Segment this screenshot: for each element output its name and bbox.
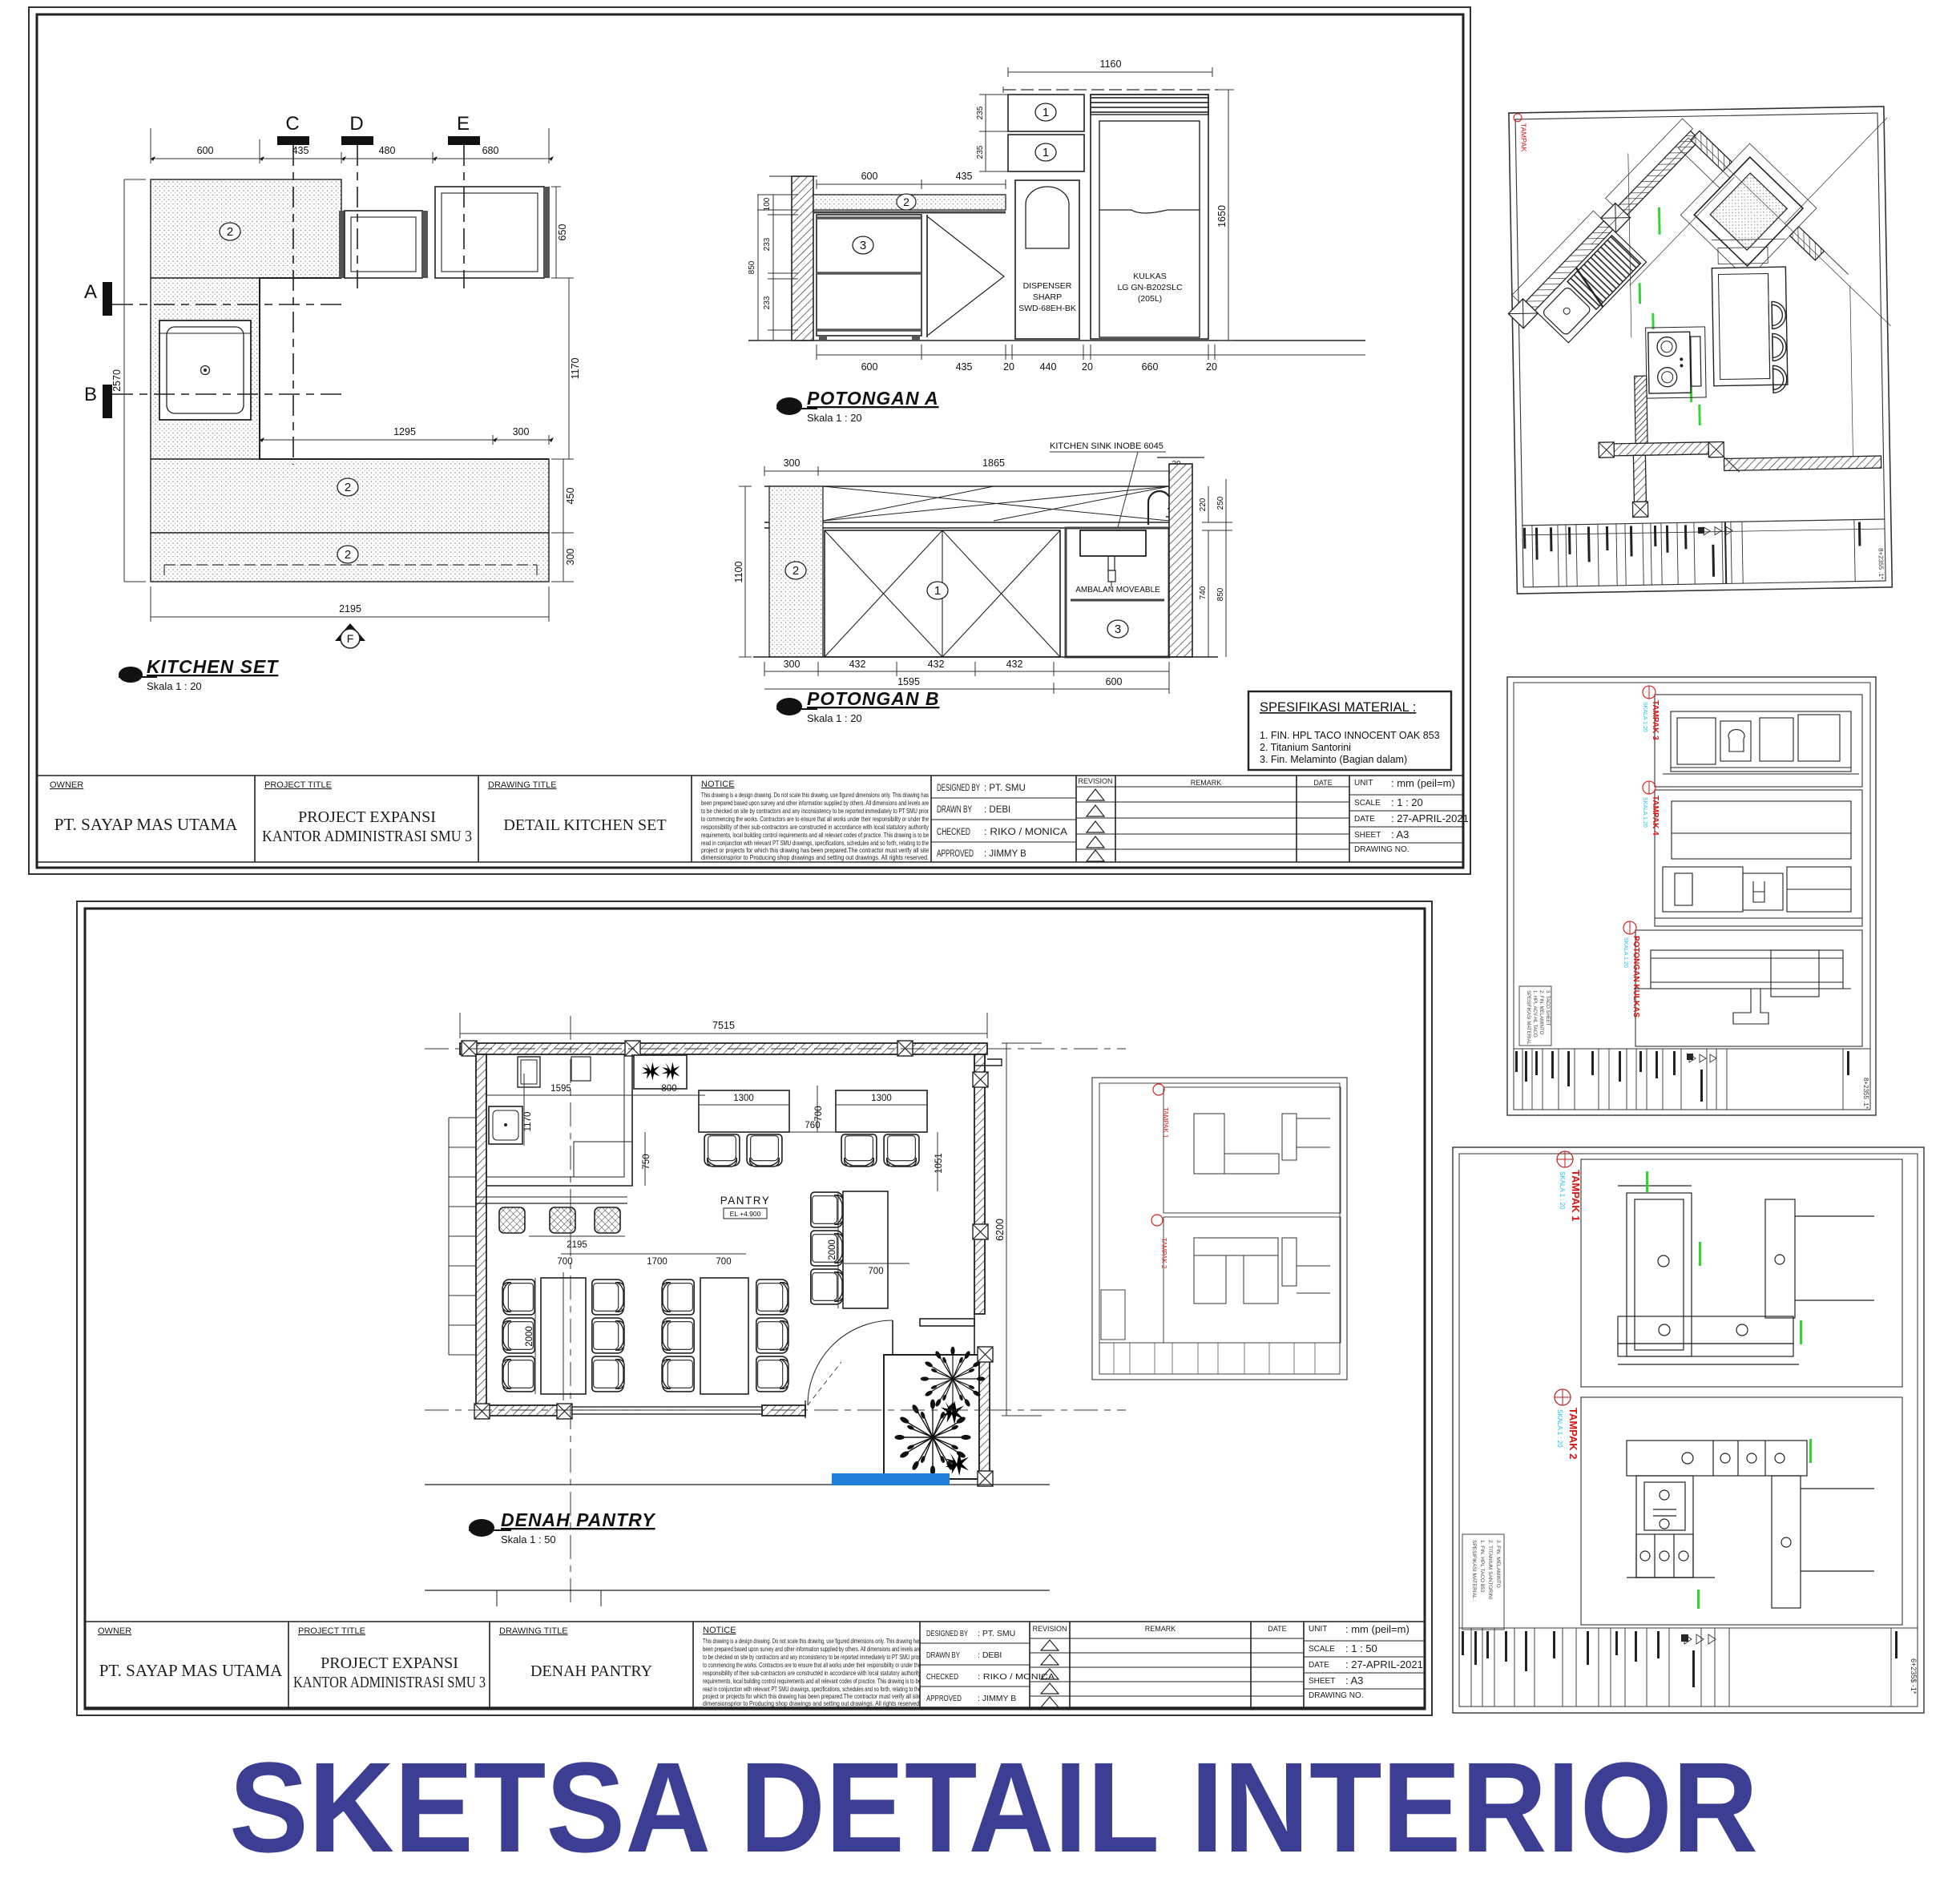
svg-text:F: F [347,632,354,645]
svg-text:300: 300 [784,457,801,469]
svg-text:read in conjunction with relev: read in conjunction with relevant PT SMU… [703,1686,921,1693]
svg-text:DESIGNED BY: DESIGNED BY [926,1629,968,1638]
svg-text:1650: 1650 [1216,205,1228,228]
svg-text:TAMPAK: TAMPAK [1519,123,1528,152]
svg-text:APPROVED: APPROVED [937,849,974,859]
svg-text:SCALE: SCALE [1309,1645,1335,1654]
svg-text:project or projects for which: project or projects for which this drawi… [703,1693,921,1700]
svg-text:TAMPAK 4: TAMPAK 4 [1651,796,1660,836]
svg-text:SKETSA DETAIL INTERIOR: SKETSA DETAIL INTERIOR [229,1735,1758,1879]
svg-text:TAMPAK 1: TAMPAK 1 [1162,1107,1169,1138]
svg-text:requirements, local building c: requirements, local building control req… [701,832,929,839]
svg-text:1. FIN. HPL TACO 853: 1. FIN. HPL TACO 853 [1479,1540,1485,1593]
svg-text:SPESIFIKASI MATERIAL: SPESIFIKASI MATERIAL [1526,990,1530,1046]
svg-text:435: 435 [956,171,973,182]
svg-text:DRAWING TITLE: DRAWING TITLE [499,1626,568,1636]
svg-text:responsibility of their sub-co: responsibility of their sub-contractors … [703,1670,922,1677]
svg-text:8+2355 .1*: 8+2355 .1* [1877,548,1885,579]
svg-text:SHEET: SHEET [1309,1677,1335,1686]
svg-text:432: 432 [1006,659,1023,670]
svg-text:: 27-APRIL-2021: : 27-APRIL-2021 [1391,812,1469,824]
svg-text:1100: 1100 [733,562,744,583]
svg-text:250: 250 [1216,496,1225,510]
svg-text:EL +4.900: EL +4.900 [730,1210,761,1218]
svg-text:PROJECT TITLE: PROJECT TITLE [298,1626,365,1636]
svg-text:1865: 1865 [982,457,1005,469]
svg-text:650: 650 [557,224,568,241]
svg-text:OWNER: OWNER [50,780,83,790]
svg-text:TAMPAK 1: TAMPAK 1 [1570,1170,1582,1222]
svg-text:dimensionsprior to Producing s: dimensionsprior to Producing shop drawin… [703,1700,921,1707]
svg-text:3. Fin. Melaminto (Bagian dala: 3. Fin. Melaminto (Bagian dalam) [1260,754,1407,765]
svg-text:DRAWING NO.: DRAWING NO. [1309,1691,1364,1700]
svg-text:600: 600 [1106,676,1123,687]
svg-text:B: B [84,384,97,405]
svg-text:A: A [84,281,97,303]
svg-text:dimensionsprior to Producing s: dimensionsprior to Producing shop drawin… [701,854,929,861]
svg-text:KULKAS: KULKAS [1133,272,1166,281]
svg-text:750: 750 [642,1154,651,1169]
svg-text:POTONGAN A: POTONGAN A [807,388,939,409]
svg-text:DRAWING TITLE: DRAWING TITLE [488,780,557,790]
svg-text:DETAIL KITCHEN SET: DETAIL KITCHEN SET [503,816,666,834]
svg-text:2: 2 [345,548,351,562]
svg-text:1051: 1051 [934,1153,944,1174]
svg-text:Skala 1 : 20: Skala 1 : 20 [147,680,202,692]
svg-text:: A3: : A3 [1391,828,1409,840]
svg-text:KANTOR ADMINISTRASI SMU 3: KANTOR ADMINISTRASI SMU 3 [262,828,472,845]
svg-text:POTONGAN KULKAS: POTONGAN KULKAS [1631,936,1640,1017]
svg-text:1300: 1300 [733,1094,754,1103]
svg-text:to commencing the works. Contr: to commencing the works. Contractors are… [701,816,929,823]
svg-text:233: 233 [763,237,772,251]
svg-text:2: 2 [227,225,233,239]
svg-text:2. Titanium Santorini: 2. Titanium Santorini [1260,742,1351,753]
svg-text:APPROVED: APPROVED [926,1694,962,1703]
svg-text:20: 20 [1003,361,1014,373]
svg-text:PROJECT EXPANSI: PROJECT EXPANSI [298,808,436,826]
svg-text:: 1 : 50: : 1 : 50 [1345,1642,1377,1654]
svg-text:435: 435 [956,361,973,373]
svg-text:850: 850 [748,260,756,274]
svg-text:SHEET: SHEET [1354,831,1381,840]
svg-text:REMARK: REMARK [1145,1625,1176,1633]
svg-text:TAMPAK 3: TAMPAK 3 [1651,700,1660,740]
svg-text:1595: 1595 [550,1084,571,1094]
svg-text:NOTICE: NOTICE [703,1626,736,1635]
svg-text:POTONGAN B: POTONGAN B [807,688,939,709]
svg-text:: PT. SMU: : PT. SMU [984,784,1026,793]
svg-text:1. HPL ACV-HL TACO: 1. HPL ACV-HL TACO [1532,990,1537,1038]
svg-text:1160: 1160 [1100,58,1122,70]
svg-text:100: 100 [763,197,772,211]
svg-text:1595: 1595 [897,676,920,687]
svg-text:450: 450 [565,488,576,505]
svg-text:KANTOR ADMINISTRASI SMU 3: KANTOR ADMINISTRASI SMU 3 [293,1674,486,1691]
svg-text:: JIMMY B: : JIMMY B [984,849,1026,859]
svg-text:435: 435 [292,145,309,156]
svg-text:1295: 1295 [393,426,416,437]
svg-text:3. FIN. MELAMINTO: 3. FIN. MELAMINTO [1495,1540,1501,1588]
svg-text:: A3: : A3 [1345,1674,1363,1686]
svg-text:2195: 2195 [567,1240,587,1250]
svg-text:1300: 1300 [871,1094,892,1103]
svg-text:600: 600 [197,145,214,156]
svg-text:SKALA 1:20: SKALA 1:20 [1623,937,1628,968]
svg-text:KITCHEN SET: KITCHEN SET [147,656,279,677]
svg-text:1: 1 [1043,106,1049,119]
svg-text:PROJECT TITLE: PROJECT TITLE [264,780,332,790]
svg-text:project or projects for which: project or projects for which this drawi… [701,847,929,854]
svg-text:to be checked on site by contr: to be checked on site by contractors and… [701,808,929,815]
svg-text:SKALA 1 : 20: SKALA 1 : 20 [1559,1171,1566,1210]
svg-text:233: 233 [763,296,772,309]
svg-text:TAMPAK 2: TAMPAK 2 [1160,1238,1168,1269]
svg-text:OWNER: OWNER [98,1626,131,1636]
svg-text:700: 700 [868,1267,883,1276]
svg-text:SKALA 1:20: SKALA 1:20 [1642,702,1647,732]
svg-text:UNIT: UNIT [1354,779,1373,788]
svg-text:2. FIN. MELAMINTO: 2. FIN. MELAMINTO [1539,990,1543,1035]
svg-text:3. TACO SHEET: 3. TACO SHEET [1545,990,1550,1026]
svg-text:235: 235 [976,145,985,159]
svg-text:C: C [285,113,299,135]
svg-text:2000: 2000 [525,1326,534,1347]
svg-text:220: 220 [1199,498,1208,511]
svg-text:SKALA 1 : 20: SKALA 1 : 20 [1556,1409,1563,1448]
svg-text:3: 3 [1115,623,1121,636]
svg-text:CHECKED: CHECKED [937,828,970,837]
svg-text:REVISION: REVISION [1032,1625,1067,1633]
svg-text:SPESIFIKASI MATERIAL :: SPESIFIKASI MATERIAL : [1471,1540,1477,1602]
svg-text:to commencing the works. Contr: to commencing the works. Contractors are… [703,1662,921,1669]
svg-text:1. FIN. HPL TACO INNOCENT OAK: 1. FIN. HPL TACO INNOCENT OAK 853 [1260,730,1440,741]
svg-text:DESIGNED BY: DESIGNED BY [937,784,980,793]
svg-text:300: 300 [513,426,530,437]
svg-text:: JIMMY B: : JIMMY B [978,1694,1016,1703]
svg-text:1170: 1170 [523,1112,533,1132]
svg-text:235: 235 [976,106,985,119]
svg-text:been prepared based upon surve: been prepared based upon survey and othe… [701,800,929,807]
svg-text:DATE: DATE [1313,779,1332,787]
svg-text:to be checked on site by contr: to be checked on site by contractors and… [703,1654,921,1661]
svg-text:DRAWN BY: DRAWN BY [926,1650,960,1660]
svg-text:(205L): (205L) [1138,294,1162,304]
svg-text:2: 2 [903,195,909,208]
svg-text:6200: 6200 [994,1219,1006,1241]
svg-text:SCALE: SCALE [1354,799,1381,808]
svg-text:1: 1 [934,584,941,598]
svg-text:CHECKED: CHECKED [926,1672,958,1682]
svg-text:700: 700 [716,1257,731,1267]
svg-text:AMBALAN MOVEABLE: AMBALAN MOVEABLE [1075,586,1160,594]
svg-text:: RIKO / MONICA: : RIKO / MONICA [984,828,1067,837]
svg-text:DRAWN BY: DRAWN BY [937,805,972,815]
svg-text:2570: 2570 [111,369,123,392]
svg-text:7515: 7515 [712,1020,735,1031]
svg-text:432: 432 [928,659,945,670]
svg-text:PROJECT EXPANSI: PROJECT EXPANSI [321,1654,458,1672]
svg-text:SWD-68EH-BK: SWD-68EH-BK [1018,304,1076,313]
svg-text:: PT. SMU: : PT. SMU [978,1629,1015,1638]
svg-text:480: 480 [379,145,396,156]
svg-text:1700: 1700 [647,1257,667,1267]
svg-text:850: 850 [1216,587,1225,601]
svg-text:660: 660 [1142,361,1159,373]
svg-text:: mm (peil=m): : mm (peil=m) [1391,777,1455,789]
svg-text:800: 800 [661,1084,676,1094]
svg-text:Skala 1 : 20: Skala 1 : 20 [807,712,862,724]
svg-text:2000: 2000 [828,1239,837,1260]
svg-text:DATE: DATE [1354,815,1375,824]
svg-text:UNIT: UNIT [1309,1625,1327,1634]
svg-text:PANTRY: PANTRY [720,1195,771,1207]
svg-text:20: 20 [1206,361,1217,373]
svg-text:740: 740 [1199,586,1208,599]
svg-text:1170: 1170 [570,358,581,380]
svg-text:760: 760 [805,1121,820,1130]
svg-text:: mm (peil=m): : mm (peil=m) [1345,1623,1410,1635]
svg-text:been prepared based upon surve: been prepared based upon survey and othe… [703,1646,921,1653]
svg-text:REMARK: REMARK [1191,779,1222,787]
svg-text:D: D [349,113,363,135]
svg-text:20: 20 [1082,361,1093,373]
svg-text:This drawing is a design drawi: This drawing is a design drawing. Do not… [703,1638,921,1645]
svg-text:3: 3 [860,239,866,252]
svg-text:DENAH PANTRY: DENAH PANTRY [501,1509,656,1530]
svg-text:DATE: DATE [1309,1661,1329,1670]
svg-text:REVISION: REVISION [1078,777,1112,785]
svg-text:600: 600 [861,171,878,182]
svg-text:: DEBI: : DEBI [978,1650,1002,1660]
svg-text:6+235$ -1*: 6+235$ -1* [1910,1658,1918,1694]
svg-text:DENAH PANTRY: DENAH PANTRY [530,1662,652,1680]
svg-text:8+2355 .1*: 8+2355 .1* [1862,1078,1869,1109]
svg-text:E: E [457,113,470,135]
svg-text:LG GN-B202SLC: LG GN-B202SLC [1117,283,1183,292]
svg-text:NOTICE: NOTICE [701,780,735,789]
svg-text:300: 300 [784,659,801,670]
svg-text:1: 1 [1043,146,1049,159]
svg-text:2195: 2195 [339,603,361,615]
svg-text:SHARP: SHARP [1033,292,1062,302]
svg-text:680: 680 [482,145,499,156]
svg-text:432: 432 [849,659,866,670]
svg-text:700: 700 [814,1106,824,1121]
svg-text:responsibility of their sub-co: responsibility of their sub-contractors … [701,824,930,831]
svg-text:DRAWING NO.: DRAWING NO. [1354,845,1410,854]
svg-text:This drawing is a design drawi: This drawing is a design drawing. Do not… [701,792,929,799]
svg-text:2: 2 [345,481,351,494]
svg-text:: DEBI: : DEBI [984,805,1010,815]
svg-text:DATE: DATE [1268,1625,1286,1633]
svg-text:600: 600 [861,361,878,373]
svg-text:: 1 : 20: : 1 : 20 [1391,796,1423,808]
svg-text:PT. SAYAP MAS UTAMA: PT. SAYAP MAS UTAMA [99,1661,283,1680]
svg-text:PT. SAYAP MAS UTAMA: PT. SAYAP MAS UTAMA [54,815,238,834]
svg-text:KITCHEN SINK INOBE 6045: KITCHEN SINK INOBE 6045 [1050,441,1163,451]
svg-text:2: 2 [792,564,799,578]
svg-text:: 27-APRIL-2021: : 27-APRIL-2021 [1345,1658,1423,1670]
svg-text:requirements, local building c: requirements, local building control req… [703,1678,921,1685]
svg-text:SPESIFIKASI MATERIAL :: SPESIFIKASI MATERIAL : [1260,700,1416,715]
svg-text:Skala 1 : 20: Skala 1 : 20 [807,412,862,424]
svg-text:2. TITANIUM SANTORINI: 2. TITANIUM SANTORINI [1487,1540,1493,1600]
svg-text:TAMPAK 2: TAMPAK 2 [1567,1408,1579,1460]
svg-text:440: 440 [1040,361,1057,373]
svg-text:read in conjunction with relev: read in conjunction with relevant PT SMU… [701,840,929,847]
svg-text:DISPENSER: DISPENSER [1023,281,1072,291]
svg-text:Skala 1 : 50: Skala 1 : 50 [501,1533,556,1545]
svg-text:300: 300 [565,549,576,566]
svg-text:SKALA 1:20: SKALA 1:20 [1642,797,1647,828]
